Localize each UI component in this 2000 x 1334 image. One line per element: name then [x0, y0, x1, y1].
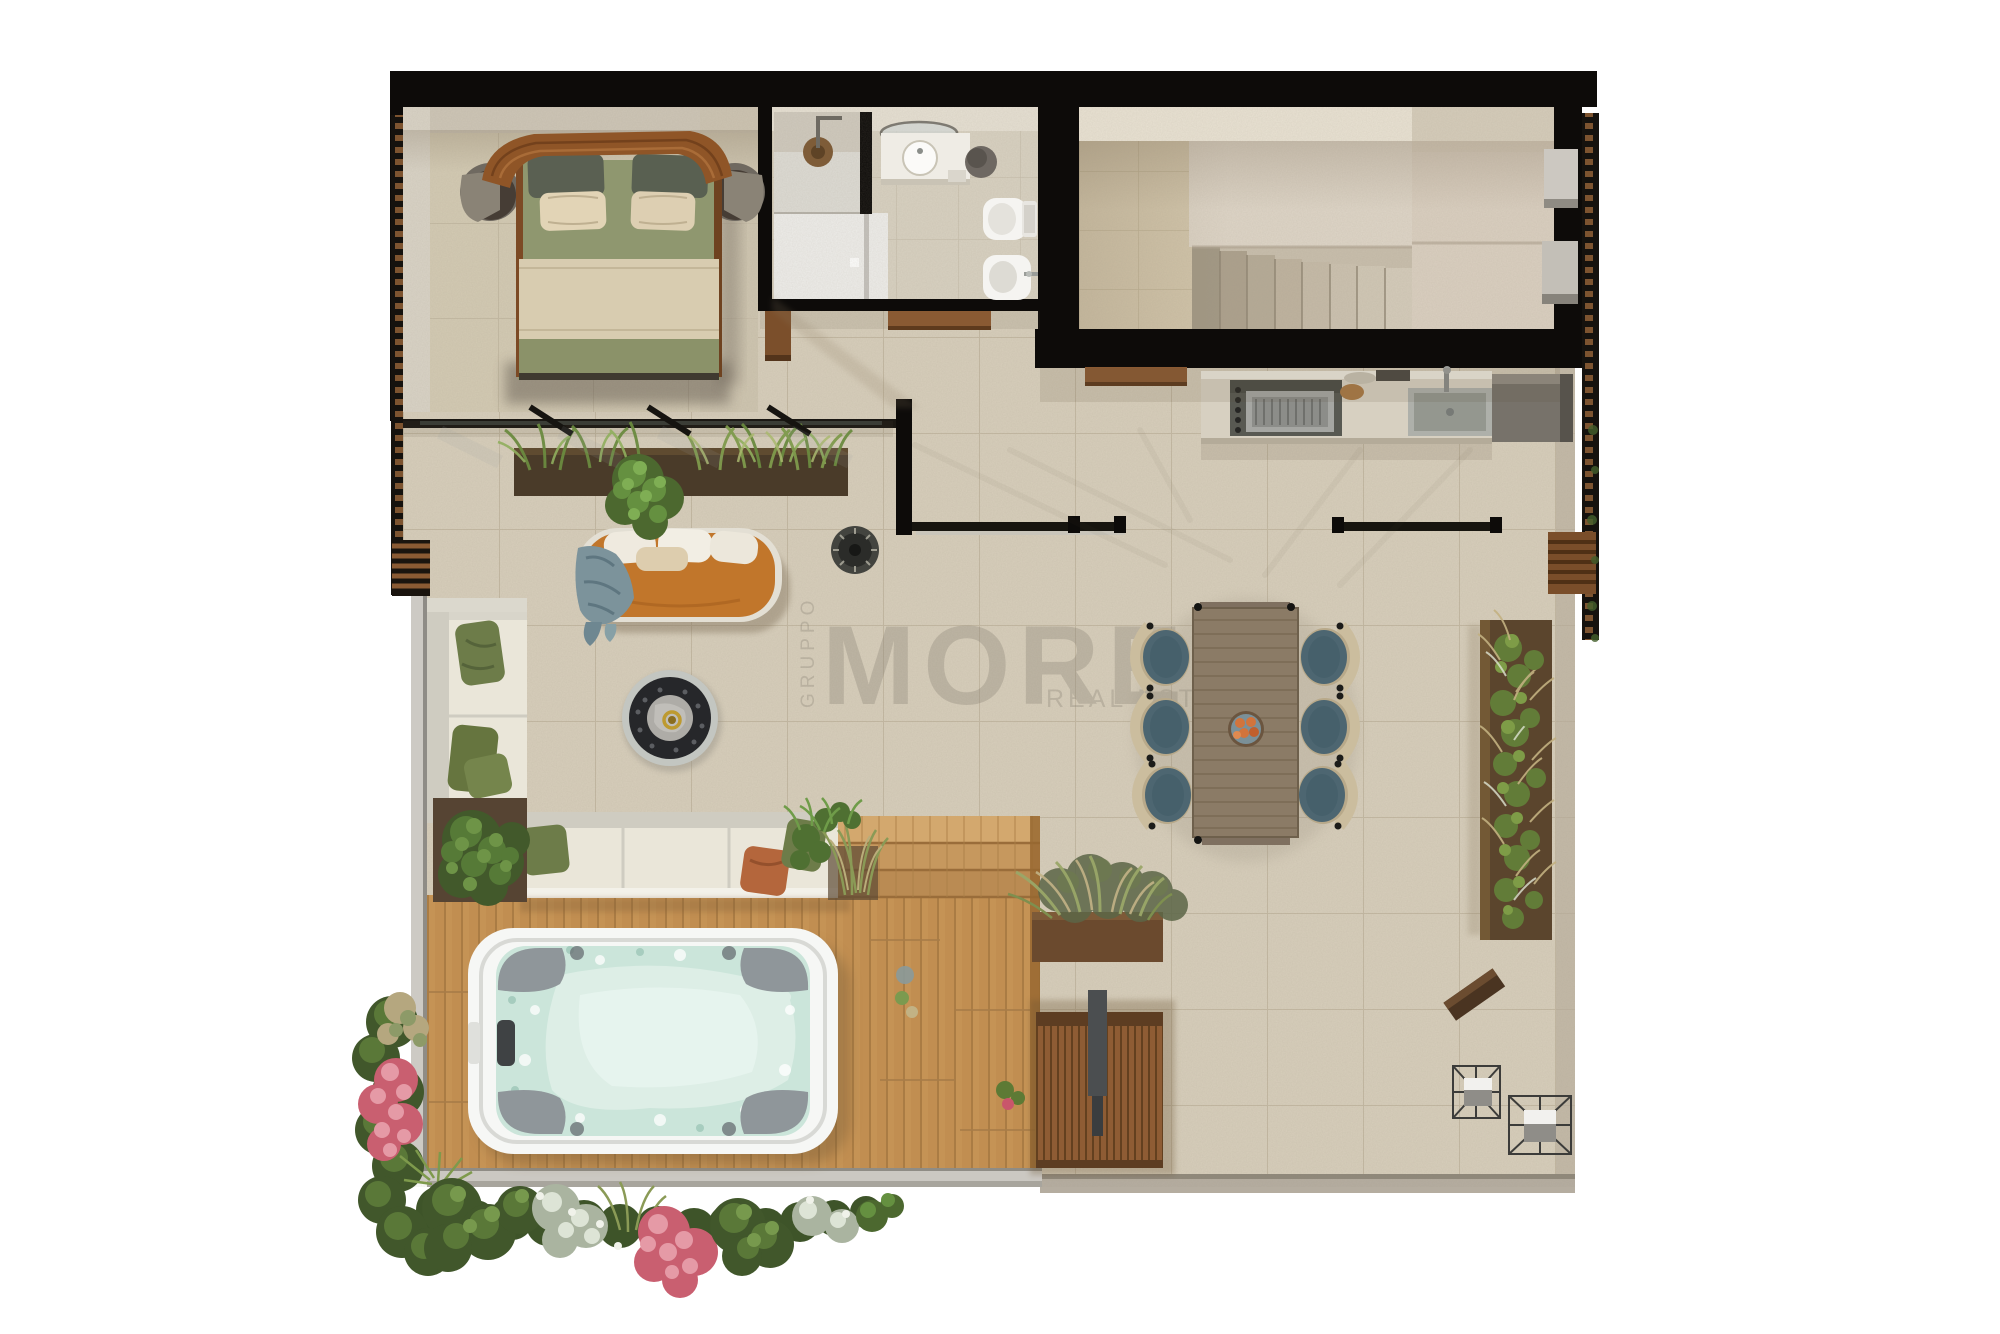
svg-text:GRUPPO: GRUPPO	[798, 596, 819, 708]
